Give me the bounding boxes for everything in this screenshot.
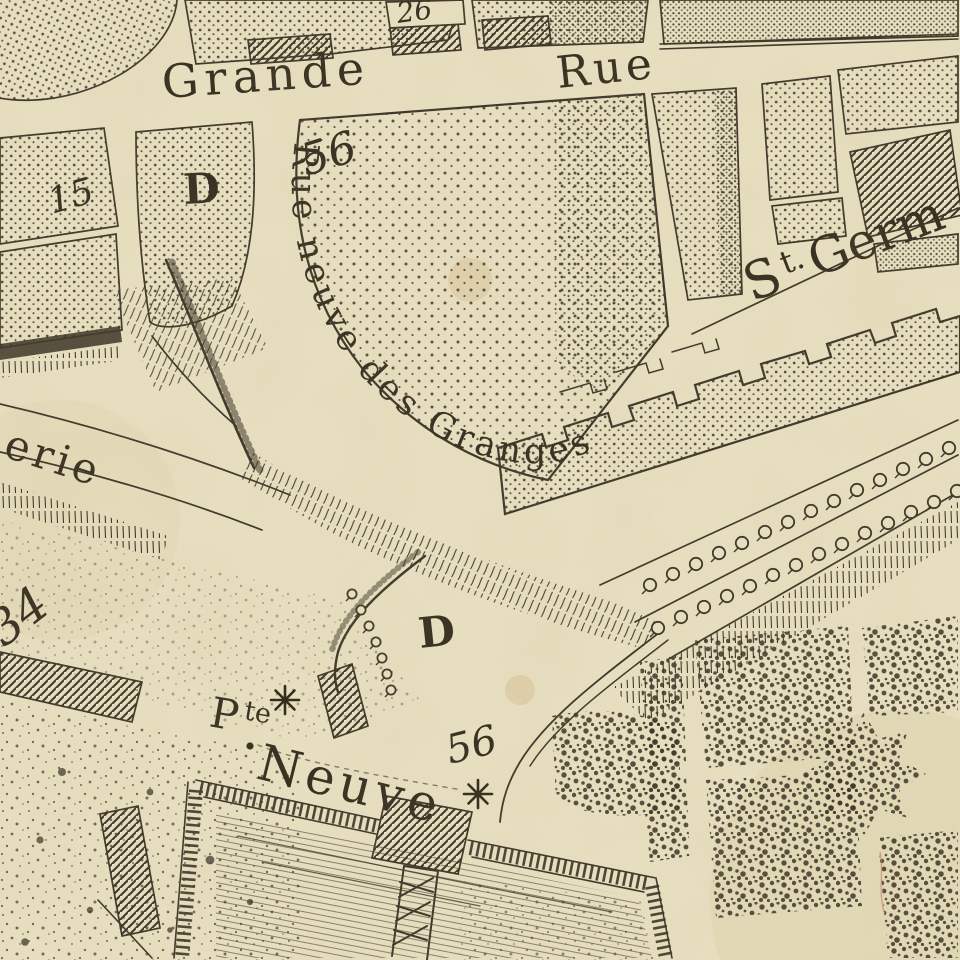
district-letter-d-lower: D	[416, 605, 457, 658]
city-block	[762, 76, 838, 200]
gate-star-icon	[271, 686, 299, 714]
street-label-rue: Rue	[554, 38, 658, 99]
map-engraving-stage: Grande Rue Rue neuve des Granges S t. Ge…	[0, 0, 960, 960]
hatched-building	[482, 16, 551, 50]
plot-number-26: 26	[393, 0, 434, 30]
tree-clump	[552, 711, 682, 815]
parterre-bed	[878, 830, 958, 958]
boundary-dot-marker	[246, 742, 253, 749]
engraved-city-map: Grande Rue Rue neuve des Granges S t. Ge…	[0, 0, 960, 960]
parterre-bed	[862, 616, 958, 716]
gate-star-icon	[464, 780, 492, 808]
city-block-dense	[660, 0, 958, 44]
city-block	[838, 56, 958, 134]
star-parterre	[802, 712, 926, 836]
pte-te: te	[242, 695, 274, 730]
district-letter-d-upper: D	[182, 163, 221, 214]
